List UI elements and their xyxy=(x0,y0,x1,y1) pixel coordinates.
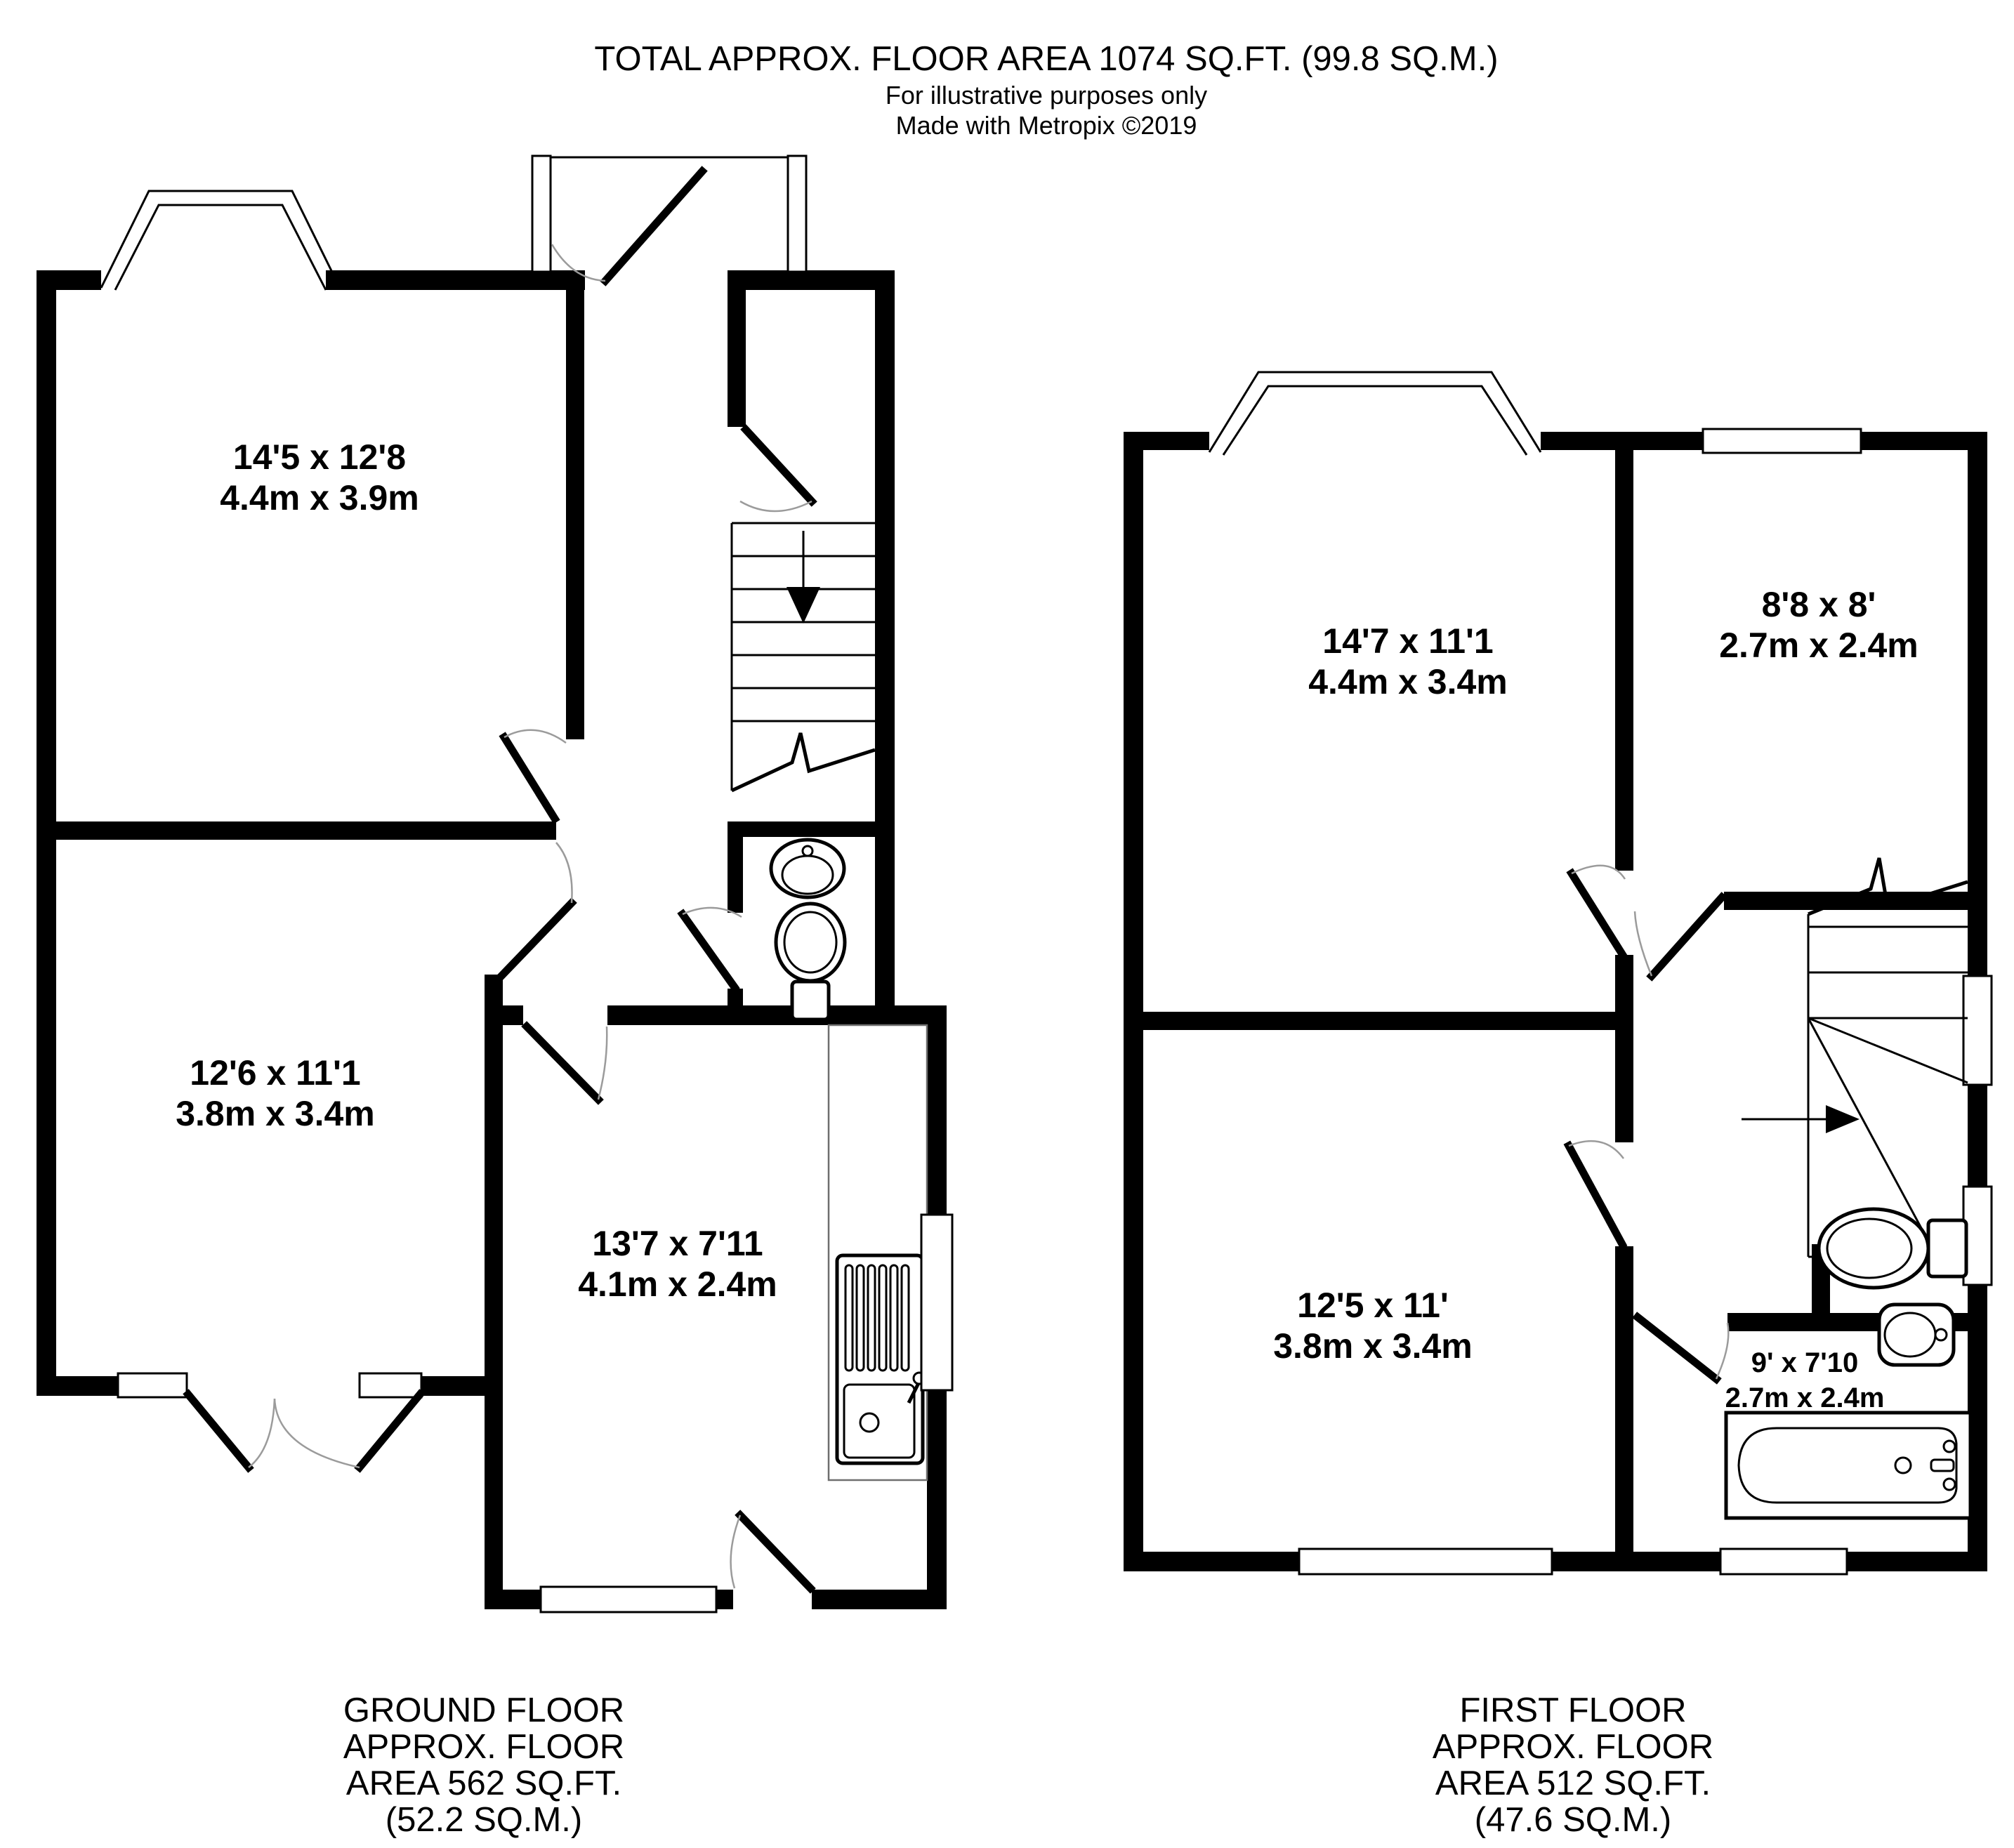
room-label-bedroom3-imperial: 12'5 x 11' xyxy=(1297,1286,1449,1325)
caption-line: APPROX. FLOOR xyxy=(1433,1728,1713,1766)
french-door-leaf-icon xyxy=(360,1394,420,1467)
door-swing-arc xyxy=(1716,1323,1728,1379)
door-swing-arc xyxy=(275,1399,360,1467)
front-door-leaf-icon xyxy=(605,171,702,281)
door-swing-arc xyxy=(740,501,812,511)
caption-line: APPROX. FLOOR xyxy=(343,1728,624,1766)
kitchen-worktop xyxy=(829,1025,927,1480)
right-arrow-icon xyxy=(1742,1105,1860,1133)
first-floor-caption: FIRST FLOOR APPROX. FLOOR AREA 512 SQ.FT… xyxy=(1433,1691,1713,1839)
room-label-bathroom-metric: 2.7m x 2.4m xyxy=(1725,1382,1885,1413)
room-label-bedroom1-metric: 4.4m x 3.4m xyxy=(1308,662,1508,701)
window-icon xyxy=(360,1373,421,1397)
french-doors xyxy=(118,1373,421,1467)
first-floor-plan: 14'7 x 11'1 4.4m x 3.4m 8'8 x 8' 2.7m x … xyxy=(1124,372,1992,1839)
toilet-icon xyxy=(776,904,845,1019)
caption-line: AREA 562 SQ.FT. xyxy=(346,1764,621,1802)
dining-door-leaf-icon xyxy=(501,903,572,976)
toilet-cistern xyxy=(1928,1220,1966,1276)
lounge-door-leaf-icon xyxy=(504,737,555,819)
illustrative-note: For illustrative purposes only xyxy=(886,81,1207,110)
bay-outer-line xyxy=(1209,372,1541,452)
window-icon xyxy=(1299,1549,1552,1574)
toilet-cistern xyxy=(792,982,829,1019)
bedroom3-door-leaf-icon xyxy=(1569,1146,1622,1244)
caption-line: (52.2 SQ.M.) xyxy=(386,1801,582,1839)
room-label-dining-metric: 3.8m x 3.4m xyxy=(176,1094,375,1133)
caption-line: FIRST FLOOR xyxy=(1459,1691,1686,1729)
window-icon xyxy=(1720,1549,1847,1574)
hall-door-leaf-icon xyxy=(746,430,812,501)
kitchen-door-leaf-icon xyxy=(527,1027,598,1100)
bay-inner-line xyxy=(1223,386,1527,455)
room-label-bedroom1-imperial: 14'7 x 11'1 xyxy=(1322,621,1493,661)
room-label-lounge-imperial: 14'5 x 12'8 xyxy=(233,437,406,477)
bedroom2-door-leaf-icon xyxy=(1652,897,1722,976)
caption-line: AREA 512 SQ.FT. xyxy=(1435,1764,1711,1802)
stairs-icon xyxy=(732,523,875,791)
arrow-head xyxy=(1826,1105,1860,1133)
room-label-bathroom-imperial: 9' x 7'10 xyxy=(1751,1347,1858,1378)
bathroom-door-leaf-icon xyxy=(1638,1317,1716,1379)
metropix-credit: Made with Metropix ©2019 xyxy=(896,111,1197,140)
door-swing-arc xyxy=(556,843,572,903)
door-swing-arc xyxy=(731,1515,740,1588)
down-arrow-icon xyxy=(786,531,820,623)
french-door-leaf-icon xyxy=(188,1394,249,1467)
ground-floor-plan: 14'5 x 12'8 4.4m x 3.9m 12'6 x 11'1 3.8m… xyxy=(37,156,952,1839)
first-floor-doors xyxy=(1569,866,1728,1379)
toilet-bowl xyxy=(776,904,845,981)
room-label-kitchen-metric: 4.1m x 2.4m xyxy=(578,1265,777,1304)
door-swing-arc xyxy=(598,1027,607,1100)
arrow-head xyxy=(786,587,820,623)
sink-icon xyxy=(1879,1305,1954,1365)
stair-break-line xyxy=(732,733,875,791)
bay-window-icon xyxy=(101,191,340,290)
wc-door-leaf-icon xyxy=(683,914,735,987)
bay-inner-line xyxy=(115,205,326,290)
door-swing-arc xyxy=(504,730,566,743)
toilet-icon xyxy=(1819,1209,1966,1288)
caption-line: GROUND FLOOR xyxy=(343,1691,624,1729)
sink-basin xyxy=(771,840,844,897)
header: TOTAL APPROX. FLOOR AREA 1074 SQ.FT. (99… xyxy=(594,40,1498,140)
room-label-lounge-metric: 4.4m x 3.9m xyxy=(220,478,419,517)
ground-floor-caption: GROUND FLOOR APPROX. FLOOR AREA 562 SQ.F… xyxy=(343,1691,624,1839)
bath-icon xyxy=(1726,1413,1970,1518)
window-icon xyxy=(921,1215,952,1390)
room-label-bedroom2-metric: 2.7m x 2.4m xyxy=(1719,626,1918,665)
window-icon xyxy=(532,156,551,272)
winder-tread xyxy=(1808,1018,1968,1083)
back-door-leaf-icon xyxy=(740,1515,810,1588)
porch xyxy=(532,156,806,281)
window-icon xyxy=(788,156,806,272)
window-icon xyxy=(541,1587,716,1612)
room-label-dining-imperial: 12'6 x 11'1 xyxy=(190,1053,360,1093)
floorplan-canvas: TOTAL APPROX. FLOOR AREA 1074 SQ.FT. (99… xyxy=(0,0,2014,1848)
kitchen-sink-icon xyxy=(837,1255,925,1463)
window-icon xyxy=(1963,976,1992,1085)
door-swing-arc xyxy=(1635,911,1652,976)
room-label-kitchen-imperial: 13'7 x 7'11 xyxy=(592,1224,763,1263)
room-label-bedroom2-imperial: 8'8 x 8' xyxy=(1762,585,1876,624)
window-icon xyxy=(118,1373,187,1397)
stairs-icon xyxy=(1742,858,1968,1257)
sink-icon xyxy=(771,840,844,897)
window-icon xyxy=(1703,429,1861,453)
door-swing-arc xyxy=(249,1399,275,1467)
total-area-title: TOTAL APPROX. FLOOR AREA 1074 SQ.FT. (99… xyxy=(594,40,1498,78)
wc-fixtures xyxy=(771,840,845,1019)
room-label-bedroom3-metric: 3.8m x 3.4m xyxy=(1273,1326,1473,1366)
caption-line: (47.6 SQ.M.) xyxy=(1475,1801,1671,1839)
bay-window-icon xyxy=(1209,372,1541,455)
bedroom1-door-leaf-icon xyxy=(1572,873,1624,956)
